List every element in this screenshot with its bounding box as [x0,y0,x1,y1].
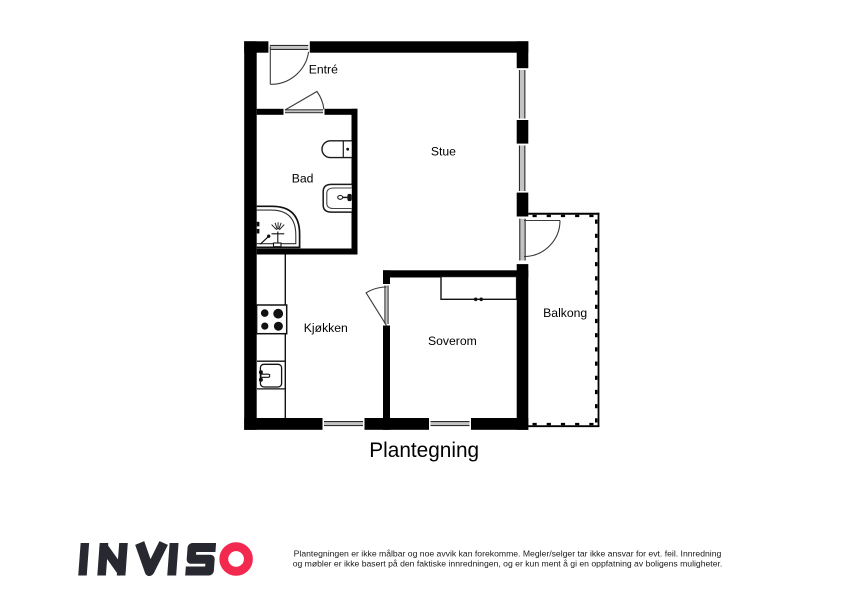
svg-text:og møbler er ikke basert på de: og møbler er ikke basert på den faktiske… [293,558,723,568]
svg-text:Balkong: Balkong [543,306,587,320]
svg-text:Kjøkken: Kjøkken [304,321,348,335]
svg-text:Soverom: Soverom [428,334,477,348]
svg-text:Entré: Entré [309,62,338,76]
svg-text:Plantegning: Plantegning [369,439,479,462]
svg-text:Stue: Stue [431,144,456,158]
svg-text:Plantegningen er ikke målbar o: Plantegningen er ikke målbar og noe avvi… [294,548,722,558]
svg-text:Bad: Bad [292,172,314,186]
